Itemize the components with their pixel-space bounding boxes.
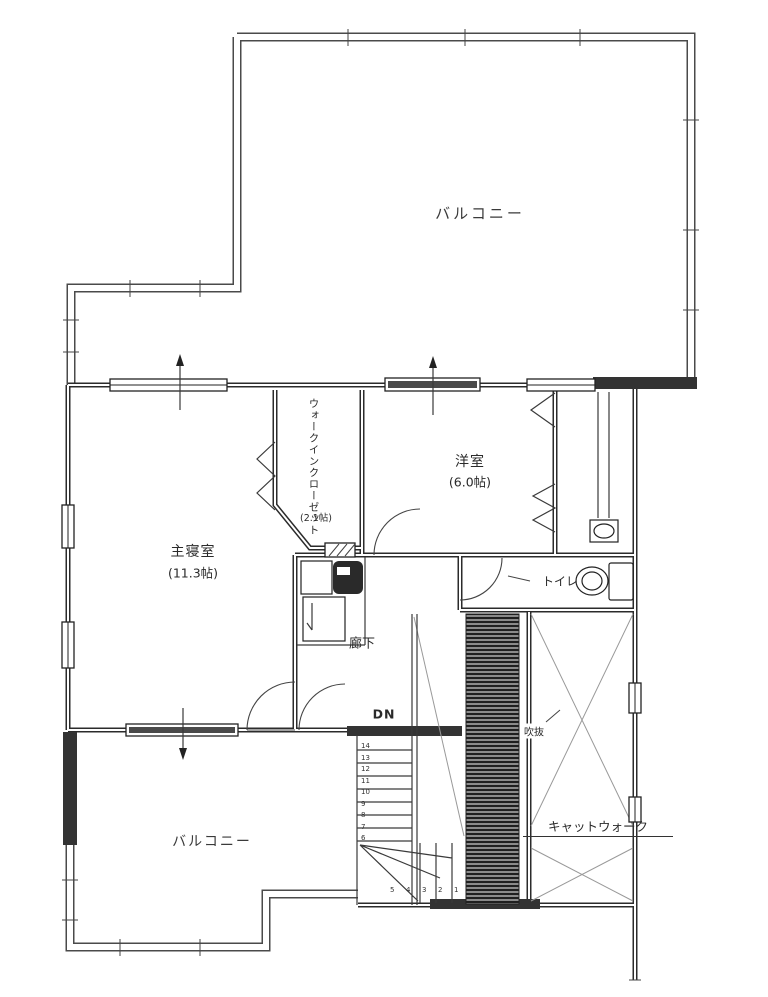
stair-step-number: 6	[361, 834, 365, 842]
door-arcs	[247, 509, 502, 730]
catwalk-cross-marks	[531, 614, 633, 901]
label-catwalk: キャットウォーク	[523, 816, 673, 837]
label-stairs-dn: DN	[373, 707, 396, 722]
stairs	[357, 614, 452, 905]
stair-step-number: 12	[361, 765, 370, 773]
label-balcony-bottom: バルコニー	[172, 831, 252, 851]
void-hatch	[414, 614, 519, 904]
label-walk-in-closet-size: (2.1帖)	[300, 510, 332, 524]
stair-step-number: 9	[361, 800, 365, 808]
stair-step-number: 13	[361, 754, 370, 762]
stair-step-number: 11	[361, 777, 370, 785]
label-void: 吹抜	[523, 724, 545, 739]
stair-step-number: 8	[361, 811, 365, 819]
floorplan-linework	[0, 0, 768, 997]
toilet-fixture	[576, 563, 633, 600]
stair-step-number: 4	[406, 886, 410, 894]
label-master-bedroom-size: (11.3帖)	[168, 563, 218, 582]
label-master-bedroom: 主寝室	[171, 541, 216, 561]
counter-fixture	[333, 561, 363, 594]
stair-step-number: 2	[438, 886, 442, 894]
stair-step-number: 3	[422, 886, 426, 894]
label-hallway: 廊下	[349, 633, 375, 652]
stair-step-number: 5	[390, 886, 394, 894]
walls	[68, 385, 697, 980]
stair-step-number: 7	[361, 823, 365, 831]
stair-step-number: 14	[361, 742, 370, 750]
label-toilet: トイレ	[542, 573, 578, 590]
label-walk-in-closet: ウォークインクローゼット	[307, 398, 320, 496]
stair-step-number: 1	[454, 886, 458, 894]
storage-niche	[297, 543, 365, 645]
tick-marks	[62, 29, 699, 980]
label-western-room-size: (6.0帖)	[449, 472, 491, 491]
stair-step-number: 10	[361, 788, 370, 796]
label-balcony-top: バルコニー	[435, 203, 525, 224]
floorplan-canvas: バルコニー バルコニー 主寝室 (11.3帖) 洋室 (6.0帖) ウォークイン…	[0, 0, 768, 997]
label-western-room: 洋室	[455, 451, 485, 471]
